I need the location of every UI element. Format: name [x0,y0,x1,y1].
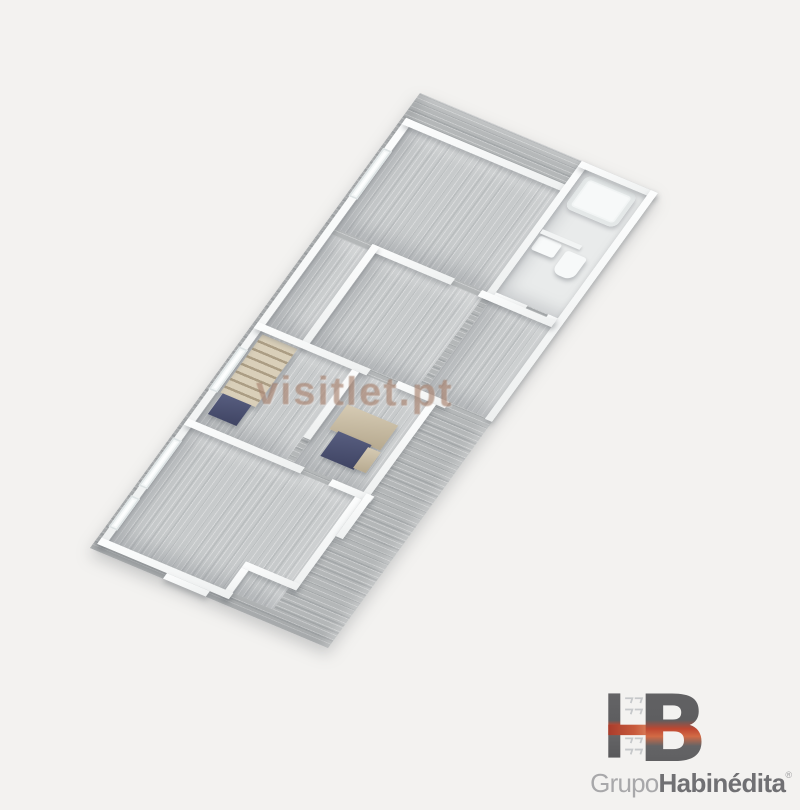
agency-name-habinedita: Habinédita [658,768,785,798]
watermark-text: visitlet.pt [256,369,454,416]
agency-name: GrupoHabinédita® [590,770,792,796]
monogram-b-letter: B [637,687,703,764]
agency-logo: B GrupoHabinédita® [555,684,795,804]
listing-photo-floorplan: visitlet.pt [0,0,800,810]
registered-mark: ® [785,770,792,780]
hb-monogram-icon: B [605,687,703,764]
agency-name-grupo: Grupo [590,768,658,798]
